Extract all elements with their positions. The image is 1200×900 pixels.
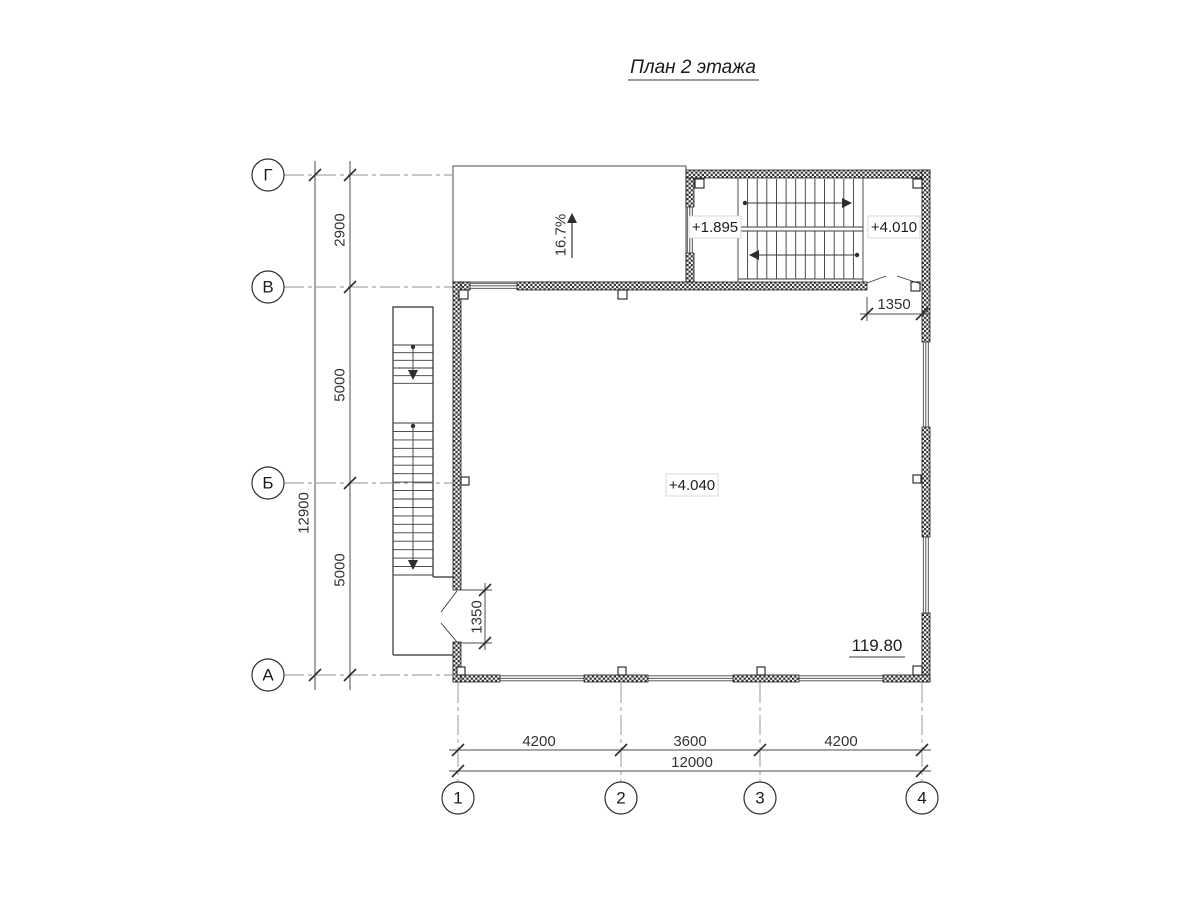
floor-plan-drawing: План 2 этажа 16.7% [0, 0, 1200, 900]
pilaster [913, 179, 922, 188]
ramp-outline [453, 166, 686, 282]
exterior-stair-outline [393, 307, 453, 655]
dim-overall-vertical: 12900 [296, 492, 313, 534]
level-labels: +1.895 +4.010 +4.040 [666, 216, 920, 496]
windows [470, 207, 928, 681]
window-right-2 [923, 537, 928, 613]
wall-left-lower [453, 642, 461, 682]
row-axis-lines [284, 175, 455, 675]
pilaster [457, 667, 465, 675]
wall-right-2 [922, 427, 930, 537]
window-bottom-2 [648, 676, 733, 681]
ramp-slope-label: 16.7% [553, 214, 570, 257]
exterior-stair [393, 307, 453, 655]
pilaster [913, 666, 922, 675]
wall-bottom-pier-2 [584, 675, 648, 682]
wall-right-3 [922, 613, 930, 682]
wall-bottom-pier-3 [733, 675, 799, 682]
axis-marker-2: 2 [605, 782, 637, 814]
pilaster [695, 179, 704, 188]
axis-marker-b: Б [252, 467, 284, 499]
axis-marker-g: Г [252, 159, 284, 191]
door-swing-left [441, 591, 457, 642]
axis-marker-v: В [252, 271, 284, 303]
dim-span-gv: 2900 [332, 213, 349, 246]
axis-marker-a: А [252, 659, 284, 691]
level-floor: +4.040 [669, 477, 715, 494]
window-right-1 [923, 342, 928, 427]
axis-label-3: 3 [755, 789, 764, 808]
wall-left-upper [453, 282, 461, 590]
dim-span-vb: 5000 [332, 368, 349, 401]
pilaster [757, 667, 765, 675]
pilaster [913, 475, 921, 483]
bottom-axis-grid: 4200 3600 4200 12000 1 2 3 4 [442, 683, 938, 814]
axis-marker-3: 3 [744, 782, 776, 814]
door-dim-left: 1350 [459, 583, 492, 650]
window-row-v [470, 283, 517, 288]
pilaster [459, 290, 468, 299]
wall-right-1 [922, 170, 930, 342]
window-bottom-1 [500, 676, 584, 681]
wall-row-v-main [517, 282, 867, 290]
axis-label-b: Б [262, 474, 273, 493]
axis-label-v: В [262, 278, 273, 297]
wall-stair-left-upper [686, 178, 694, 207]
area-value: 119.80 [852, 636, 903, 655]
pilaster [618, 667, 626, 675]
pilaster [618, 290, 627, 299]
stair-block [738, 178, 863, 282]
window-bottom-3 [799, 676, 883, 681]
walls [453, 170, 930, 682]
left-axis-grid: 12900 2900 5000 5000 Г В Б А [252, 159, 455, 691]
axis-label-1: 1 [453, 789, 462, 808]
axis-marker-1: 1 [442, 782, 474, 814]
door-dim-top: 1350 [860, 296, 929, 321]
dim-span-12: 4200 [522, 733, 555, 750]
drawing-title: План 2 этажа [628, 57, 759, 80]
room-area-label: 119.80 [849, 636, 905, 657]
page-title: План 2 этажа [630, 57, 756, 78]
level-stair-landing: +1.895 [692, 219, 738, 236]
dim-span-34: 4200 [824, 733, 857, 750]
floor-plan-page: План 2 этажа 16.7% [0, 0, 1200, 900]
doors [441, 276, 921, 642]
dim-door-left: 1350 [469, 600, 486, 633]
dim-door-top: 1350 [877, 296, 910, 313]
axis-label-g: Г [263, 166, 272, 185]
axis-label-4: 4 [917, 789, 926, 808]
axis-label-2: 2 [616, 789, 625, 808]
dim-overall-horizontal: 12000 [671, 754, 713, 771]
ramp-area: 16.7% [453, 166, 686, 282]
dim-span-ba: 5000 [332, 553, 349, 586]
wall-top [686, 170, 930, 178]
pilaster [461, 477, 469, 485]
level-stair-upper: +4.010 [871, 219, 917, 236]
wall-stair-left-lower [686, 253, 694, 282]
dim-span-23: 3600 [673, 733, 706, 750]
axis-marker-4: 4 [906, 782, 938, 814]
axis-label-a: А [262, 666, 274, 685]
wall-bottom-pier-4 [883, 675, 930, 682]
